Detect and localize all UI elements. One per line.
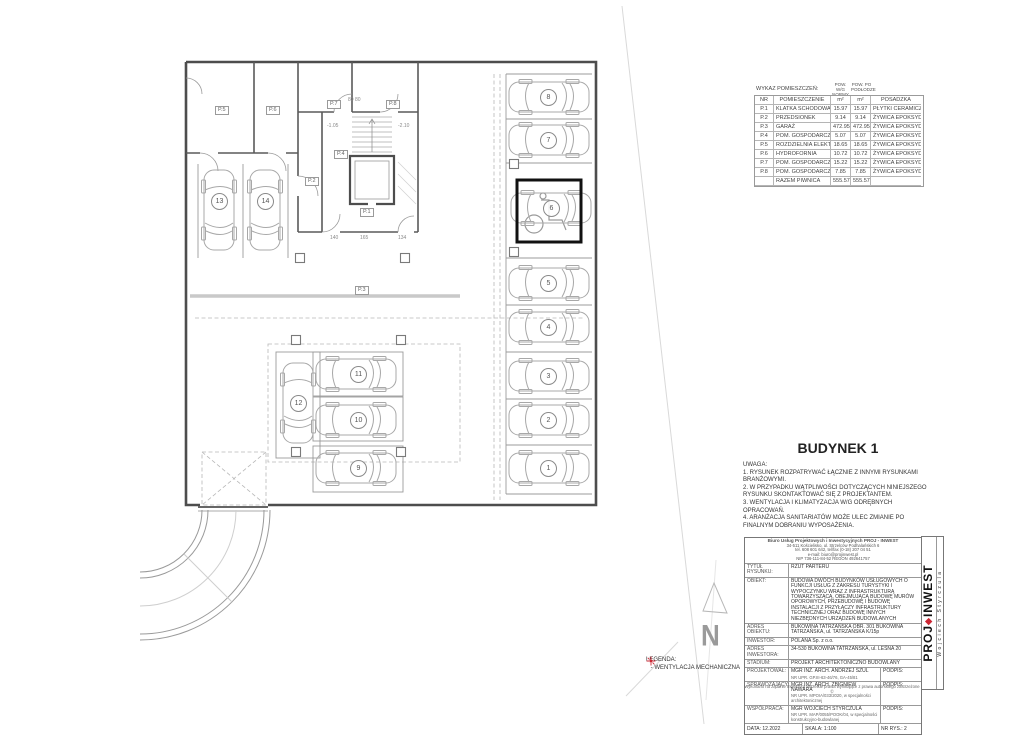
company-header: Biuro Usług Projektowych i Inwestycyjnyc… — [745, 538, 921, 564]
parking-number: 5 — [540, 275, 557, 292]
room-label: P.3 — [355, 286, 369, 295]
company-logo: PROJ◆INWEST Wojciech Styrczula — [921, 536, 944, 690]
legend-title: LEGENDA: — [646, 656, 740, 664]
cell: 5.07 — [831, 132, 851, 141]
parking-number: 11 — [350, 366, 367, 383]
col-header: POSADZKA — [871, 96, 921, 105]
cell: 7.85 — [851, 168, 871, 177]
logo-text: PROJ — [921, 625, 935, 662]
outer-walls — [186, 62, 596, 505]
object-description: BUDOWA DWÓCH BUDYNKÓW USŁUGOWYCH O FUNKC… — [789, 578, 921, 623]
site-boundary-lines — [622, 6, 716, 724]
level-mark: -2.10 — [398, 123, 409, 129]
cell: P.5 — [755, 141, 774, 150]
signature-label: PODPIS: — [881, 706, 921, 724]
investor-row: INWESTOR: POLANA Sp. z o.o. — [745, 638, 921, 646]
room-label: P.2 — [305, 177, 319, 186]
cell: ŻYWICA EPOKSYDOWA — [871, 132, 921, 141]
field-label: PROJEKTOWAŁ: — [745, 668, 789, 680]
level-mark: -1.05 — [327, 123, 338, 129]
room-label: P.6 — [266, 106, 280, 115]
cell: ŻYWICA EPOKSYDOWA — [871, 159, 921, 168]
cell: 15.22 — [831, 159, 851, 168]
cell: 18.65 — [831, 141, 851, 150]
cell: P.8 — [755, 168, 774, 177]
cell: 15.97 — [851, 105, 871, 114]
field-label: OBIEKT: — [745, 578, 789, 623]
designer-row: PROJEKTOWAŁ: MGR INŻ. ARCH. ANDRZEJ SZUL… — [745, 668, 921, 681]
col-header: POMIESZCZENIE — [774, 96, 831, 105]
total-cell — [755, 177, 774, 186]
parking-number: 12 — [290, 395, 307, 412]
total-cell: 555.57 — [851, 177, 871, 186]
cell: 15.22 — [851, 159, 871, 168]
sheet-number-label: NR RYS.: — [881, 726, 903, 732]
cell: ŻYWICA EPOKSYDOWA — [871, 141, 921, 150]
field-label: ADRES OBIEKTU: — [745, 624, 789, 637]
cell: 15.97 — [831, 105, 851, 114]
cell: ŻYWICA EPOKSYDOWA — [871, 114, 921, 123]
scale-value: 1:100 — [824, 726, 837, 732]
person-license: NR UPR. MAP/0055/POOK/04, w specjalności… — [791, 712, 878, 722]
room-label: P.5 — [215, 106, 229, 115]
notes-title: UWAGA: — [743, 462, 931, 470]
cell: P.6 — [755, 150, 774, 159]
parking-number: 7 — [540, 132, 557, 149]
cell: 472.95 — [851, 123, 871, 132]
dimension-text: 140 — [330, 235, 338, 241]
cell: 5.07 — [851, 132, 871, 141]
object-row: OBIEKT: BUDOWA DWÓCH BUDYNKÓW USŁUGOWYCH… — [745, 578, 921, 624]
person-name: MGR INŻ. ARCH. ANDRZEJ SZUL — [791, 669, 878, 674]
cell: P.1 — [755, 105, 774, 114]
parking-number: 2 — [540, 412, 557, 429]
parking-number: 6 — [543, 200, 560, 217]
total-cell: RAZEM PIWNICA — [774, 177, 831, 186]
field-label: INWESTOR: — [745, 638, 789, 645]
cell: 472.95 — [831, 123, 851, 132]
parking-number: 3 — [540, 368, 557, 385]
building-title: BUDYNEK 1 — [740, 440, 936, 456]
cell: ŻYWICA EPOKSYDOWA — [871, 123, 921, 132]
title-block: Biuro Usług Projektowych i Inwestycyjnyc… — [744, 537, 922, 735]
field-label: STADIUM: — [745, 660, 789, 667]
cell: PŁYTKI CERAMICZNE — [871, 105, 921, 114]
parking-number: 8 — [540, 89, 557, 106]
cell: POM. GOSPODARCZE — [774, 132, 831, 141]
copyright-footer: Wykonano na żądanie Inwestora Wszelkie p… — [744, 684, 920, 694]
cell: ŻYWICA EPOKSYDOWA — [871, 150, 921, 159]
cell: POM. GOSPODARCZE — [774, 168, 831, 177]
parking-number: 10 — [350, 412, 367, 429]
investor-address-row: ADRES INWESTORA: 34-530 BUKOWINA TATRZAŃ… — [745, 646, 921, 660]
cell: PRZEDSIONEK — [774, 114, 831, 123]
collaborator-row: WSPÓŁPRACA: MGR WOJCIECH STYRCZULA NR UP… — [745, 706, 921, 725]
parking-number: 1 — [540, 460, 557, 477]
field-label: WSPÓŁPRACA: — [745, 706, 789, 724]
note-line: 3. WENTYLACJA I KLIMATYZACJA W/G ODRĘBNY… — [743, 500, 931, 515]
scale-label: SKALA: — [805, 726, 823, 732]
note-line: 4. ARANŻACJA SANITARIATÓW MOŻE ULEC ZMIA… — [743, 515, 931, 530]
investor-address: 34-530 BUKOWINA TATRZAŃSKA, ul. LEŚNA 20 — [789, 646, 921, 659]
logo-diamond-icon: ◆ — [923, 617, 933, 625]
total-cell: 555.57 — [831, 177, 851, 186]
cell: P.7 — [755, 159, 774, 168]
logo-text: INWEST — [921, 564, 935, 617]
title-row: TYTUŁ RYSUNKU: RZUT PARTERU — [745, 564, 921, 578]
col-header: m² — [831, 96, 851, 105]
note-line: 2. W PRZYPADKU WĄTPLIWOŚCI DOTYCZĄCYCH N… — [743, 485, 931, 500]
logo-subtext: Wojciech Styrczula — [936, 537, 944, 689]
sheet-number-value: 2 — [904, 726, 907, 732]
parking-bay-lines — [198, 74, 592, 494]
drawing-sheet: { "accent_red": "#cc2633", "room_table":… — [0, 0, 1024, 724]
cell: ŻYWICA EPOKSYDOWA — [871, 168, 921, 177]
parking-number: 14 — [257, 193, 274, 210]
area-header-text: PODŁODZE — [851, 87, 876, 92]
notes-block: UWAGA: 1. RYSUNEK ROZPATRYWAĆ ŁĄCZNIE Z … — [743, 462, 931, 530]
legend: LEGENDA: - WENTYLACJA MECHANICZNA — [646, 656, 740, 672]
area-header-text: POW. W/G — [835, 82, 847, 92]
person-license: NR UPR. GP.III-63-46/76, GA-45/81 — [791, 675, 878, 680]
cell: KLATKA SCHODOWA — [774, 105, 831, 114]
parked-cars — [202, 80, 592, 486]
object-address-row: ADRES OBIEKTU: BUKOWINA TATRZAŃSKA OBR. … — [745, 624, 921, 638]
room-table-title: WYKAZ POMIESZCZEŃ: — [756, 86, 818, 92]
north-label: N — [701, 618, 720, 654]
dimension-text: 165 — [360, 235, 368, 241]
field-label: ADRES INWESTORA: — [745, 646, 789, 659]
garage-gate — [198, 507, 268, 511]
driveway-ramp — [140, 510, 270, 640]
elevator-shaft — [350, 156, 394, 204]
date-label: DATA: — [747, 726, 761, 732]
person-license: NR UPR. MPOIA/033/2020, w specjalności a… — [791, 693, 878, 703]
room-label: P.1 — [360, 208, 374, 217]
parking-number: 4 — [540, 319, 557, 336]
cell: POM. GOSPODARCZE — [774, 159, 831, 168]
cell: P.3 — [755, 123, 774, 132]
stairs — [352, 117, 416, 204]
note-line: 1. RYSUNEK ROZPATRYWAĆ ŁĄCZNIE Z INNYMI … — [743, 470, 931, 485]
cell: 10.72 — [831, 150, 851, 159]
cell: P.2 — [755, 114, 774, 123]
col-header: m² — [851, 96, 871, 105]
investor-name: POLANA Sp. z o.o. — [789, 638, 921, 645]
dimension-text: 80 80 — [348, 97, 361, 103]
parking-number: 13 — [211, 193, 228, 210]
room-label: P.4 — [334, 150, 348, 159]
room-table: NR POMIESZCZENIE m² m² POSADZKA P.1 KLAT… — [754, 95, 924, 187]
legend-item-label: - WENTYLACJA MECHANICZNA — [651, 665, 740, 671]
company-line: NIP 736-111-84-52 REGON 492641757 — [747, 557, 919, 562]
cell: ROZDZIELNIA ELEKTR. — [774, 141, 831, 150]
cell: HYDROFORNIA — [774, 150, 831, 159]
cell: 9.14 — [831, 114, 851, 123]
cell: P.4 — [755, 132, 774, 141]
date-value: 12.2022 — [762, 726, 780, 732]
parking-number: 9 — [350, 460, 367, 477]
room-label: P.7 — [327, 100, 341, 109]
room-label: P.8 — [386, 100, 400, 109]
north-arrow-icon — [703, 583, 727, 613]
col-header: NR — [755, 96, 774, 105]
field-label: TYTUŁ RYSUNKU: — [745, 564, 789, 577]
cell: 18.65 — [851, 141, 871, 150]
cell: 9.14 — [851, 114, 871, 123]
cell: 10.72 — [851, 150, 871, 159]
stage-value: PROJEKT ARCHITEKTONICZNO BUDOWLANY — [789, 660, 921, 667]
signature-label: PODPIS: — [881, 668, 921, 680]
object-address: BUKOWINA TATRZAŃSKA OBR. 301 BUKOWINA TA… — [789, 624, 921, 637]
drawing-title: RZUT PARTERU — [789, 564, 921, 577]
cell: GARAŻ — [774, 123, 831, 132]
date-scale-row: DATA: 12.2022 SKALA: 1:100 NR RYS.: 2 — [745, 724, 921, 734]
dimension-text: 134 — [398, 235, 406, 241]
structural-columns — [292, 160, 519, 457]
total-cell — [871, 177, 921, 186]
cell: 7.85 — [831, 168, 851, 177]
